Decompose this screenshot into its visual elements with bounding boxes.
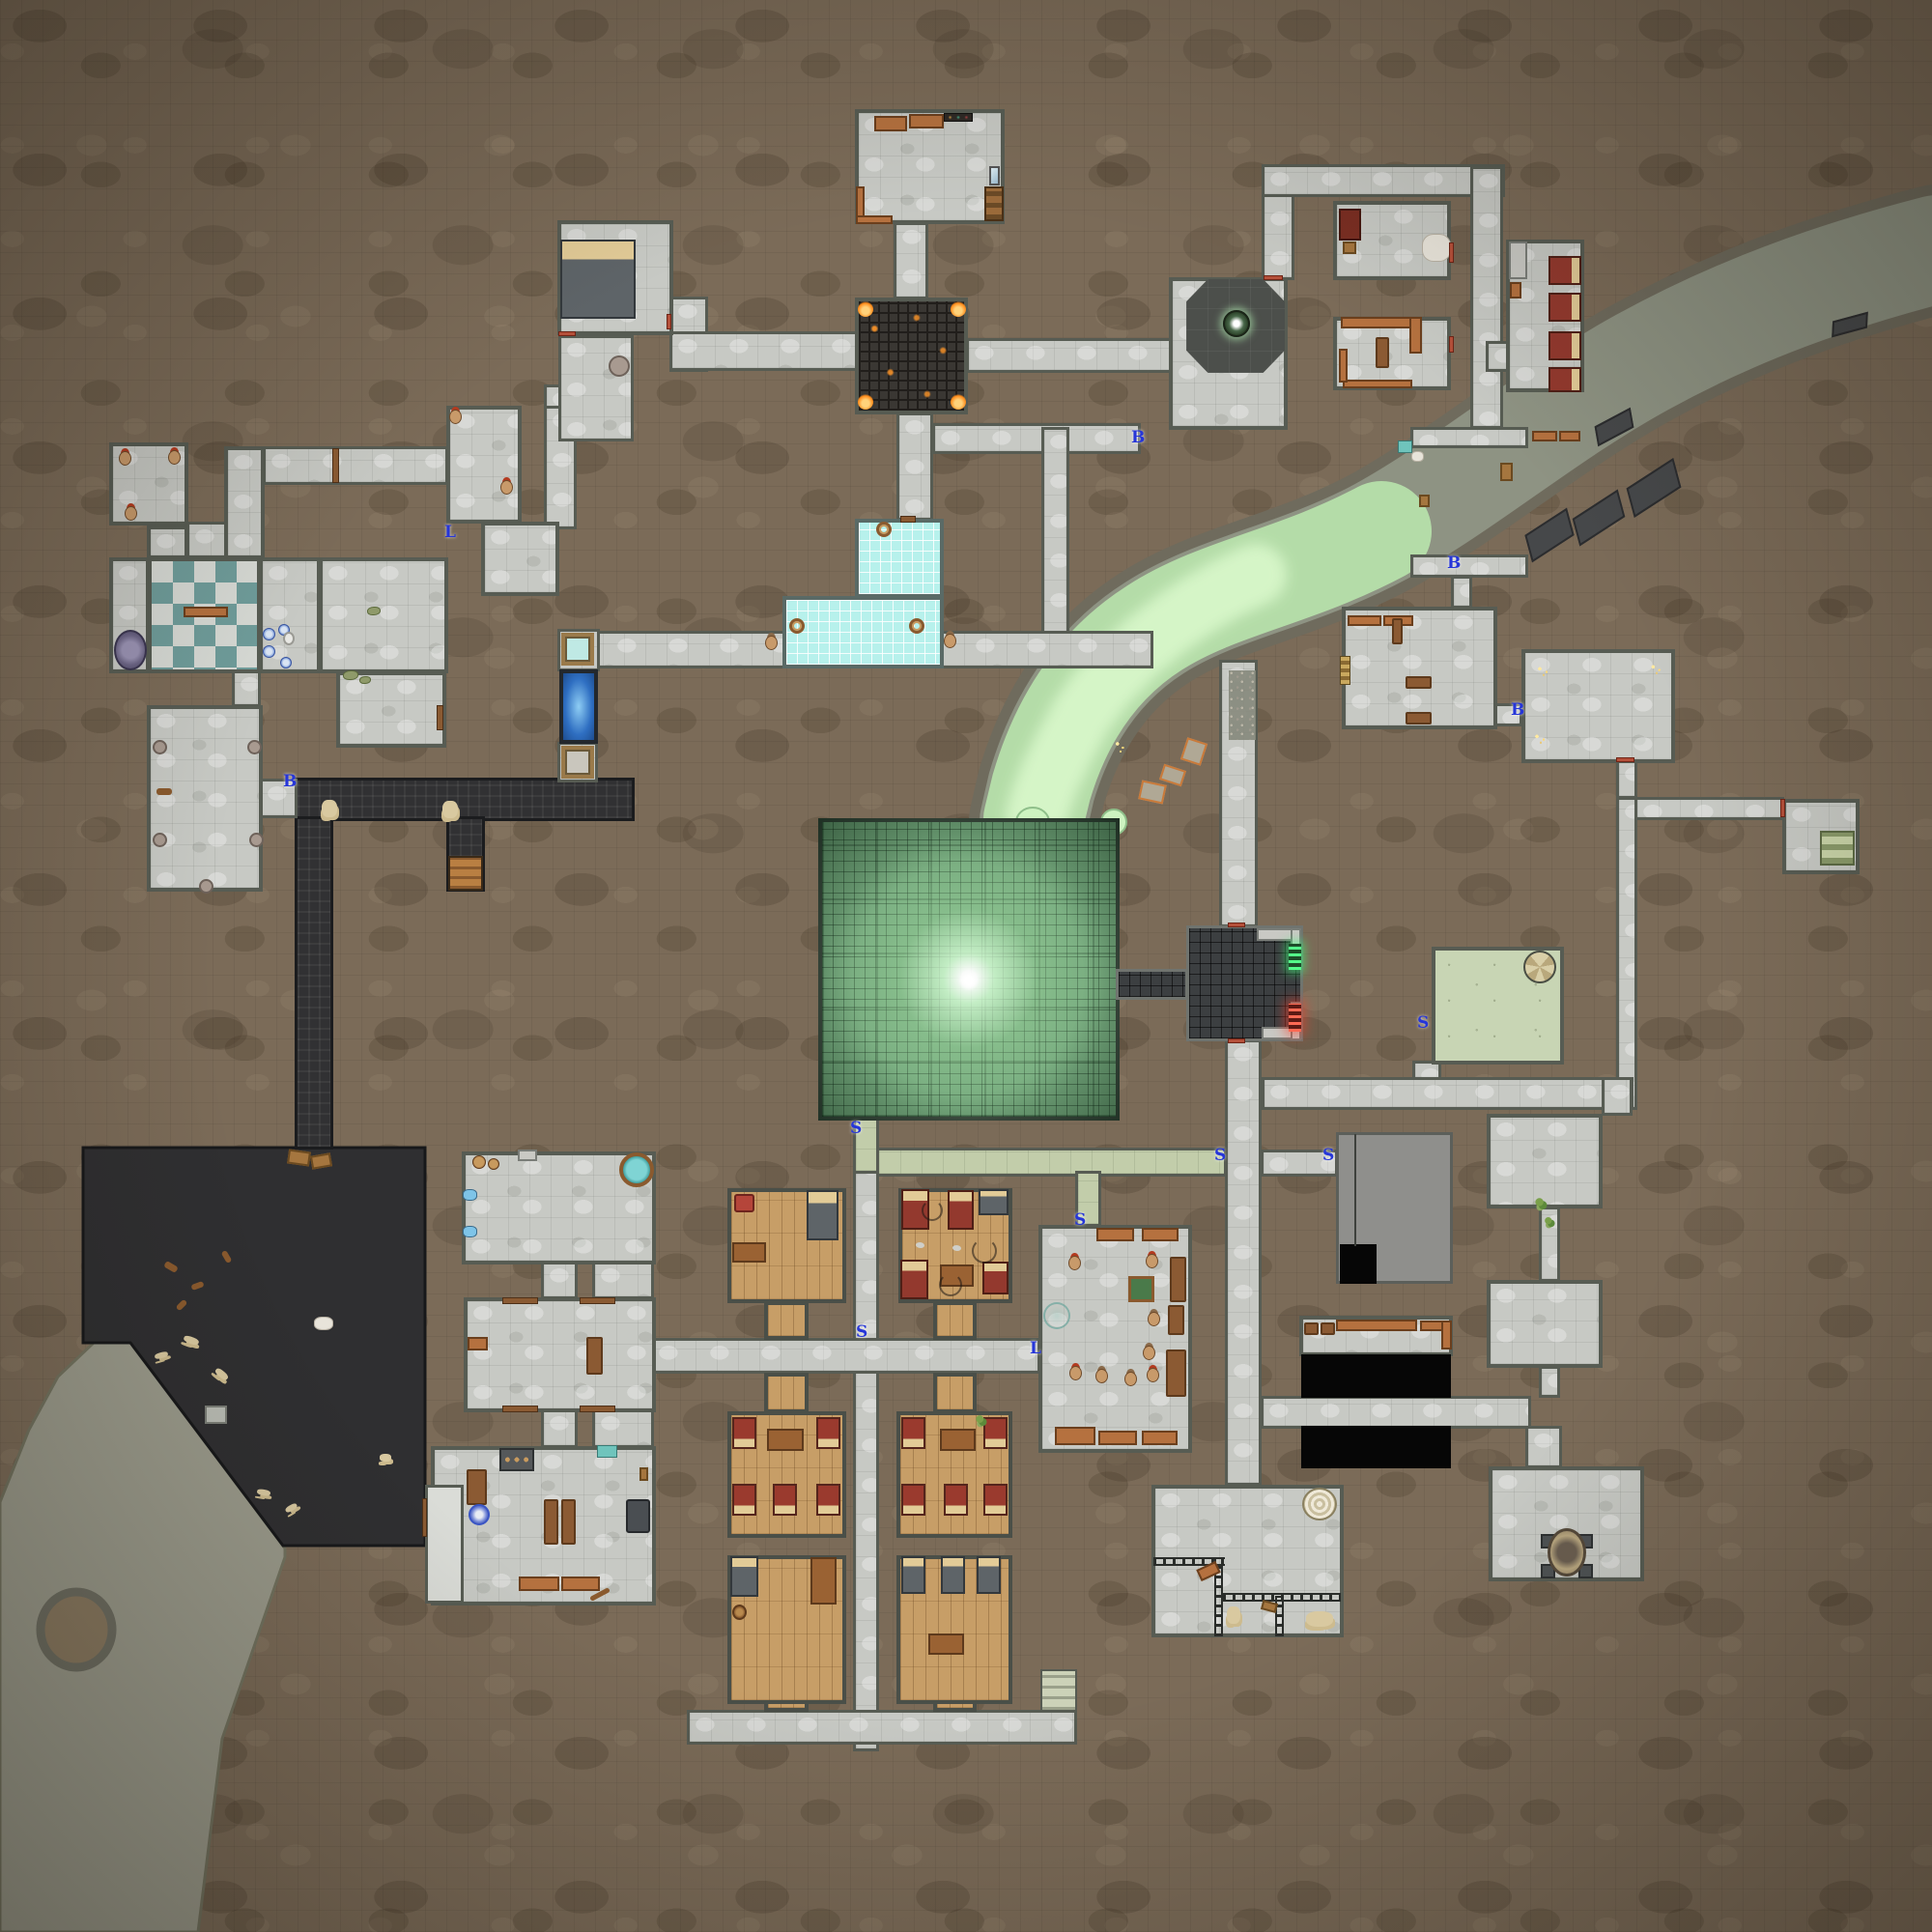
fire-octagon-corr[interactable] [966,338,1173,373]
bunk-bed[interactable] [1548,331,1581,360]
grand-bed[interactable] [560,240,636,319]
corr-h5[interactable] [1262,1077,1634,1110]
corr-v2-lower[interactable] [1225,1039,1262,1486]
door-lintel[interactable] [502,1297,538,1304]
stove[interactable] [499,1448,534,1471]
tavern-bench[interactable] [1055,1427,1095,1445]
ornate-round-table[interactable] [114,630,147,670]
bed[interactable] [948,1190,974,1230]
corridor-west-fire[interactable] [669,331,858,371]
shore-corr-north[interactable] [1410,427,1528,448]
goblin-room-1b[interactable] [147,526,188,559]
east-room-s[interactable] [336,671,446,748]
skeleton[interactable] [1227,1606,1240,1624]
table[interactable] [1376,337,1389,368]
shore-pond [41,1592,112,1667]
wash-basin[interactable] [463,1189,477,1201]
bedroll[interactable] [732,1417,756,1449]
w4-stub[interactable] [933,1373,977,1413]
checker-barracks-link[interactable] [232,669,261,707]
nw-corridor[interactable] [263,446,448,485]
teal-basin[interactable] [597,1445,617,1458]
green-bookshelf[interactable] [1820,831,1855,866]
roomB-s-stub[interactable] [1539,1366,1560,1398]
corr-h3[interactable] [1261,1396,1531,1429]
hot-tub[interactable] [619,1152,654,1187]
jail-bars[interactable] [1275,1596,1284,1636]
corr-to-river[interactable] [932,423,1141,454]
bed[interactable] [982,1262,1009,1294]
bath-stub-4[interactable] [592,1408,654,1448]
door[interactable] [1449,242,1454,263]
blue-pool[interactable] [559,669,598,744]
green-led-panel [1289,944,1301,970]
table[interactable] [767,1429,804,1451]
patron[interactable] [1095,1369,1108,1383]
bedroll[interactable] [901,1417,925,1449]
ne-corridor-v2[interactable] [1470,166,1503,429]
door[interactable] [437,705,443,730]
rope-coil[interactable] [1302,1488,1337,1520]
w3-stub[interactable] [764,1373,809,1413]
teal-mat[interactable] [1398,440,1412,453]
corr-v5[interactable] [1616,797,1637,1110]
door-marker-B[interactable]: B [1131,430,1145,446]
counter[interactable] [1339,349,1348,383]
door[interactable] [558,331,576,336]
counter[interactable] [1409,317,1422,354]
moss-rock[interactable] [343,670,358,680]
corr-v1-main[interactable] [853,1114,879,1751]
bathhouse-3-annex[interactable] [425,1485,464,1604]
corr-h4[interactable] [1634,797,1784,820]
bench-row[interactable] [561,1577,600,1591]
gold-cache[interactable] [1113,736,1128,755]
fire-pool-corr[interactable] [896,412,933,521]
square-tub[interactable] [561,746,594,779]
east-room[interactable] [319,557,448,673]
dark-bridge[interactable] [1116,969,1188,1000]
bedroll[interactable] [944,1484,968,1516]
shelf[interactable] [1510,282,1521,298]
door[interactable] [1264,275,1283,280]
dark-chest[interactable] [626,1499,650,1533]
cyan-pool-a[interactable] [855,519,944,598]
gold-sparkle[interactable] [1648,661,1665,676]
bath-stub-2[interactable] [592,1261,654,1299]
log[interactable] [156,788,172,795]
corner-flame[interactable] [951,301,966,317]
shrine-stub[interactable] [1525,1426,1562,1468]
gold-sparkle[interactable] [1534,663,1553,678]
door-marker-S[interactable]: S [1322,1148,1334,1164]
door-marker-B[interactable]: B [283,774,297,790]
valve-wheel[interactable] [909,618,924,634]
void-counter[interactable] [1441,1321,1452,1350]
door-marker-B[interactable]: B [1511,702,1524,719]
bench[interactable] [1348,615,1381,626]
red-desk[interactable] [1339,209,1361,241]
wall-table[interactable] [1166,1350,1186,1397]
vine-plant[interactable] [1534,1196,1548,1211]
kitchen-counter[interactable] [1509,241,1527,279]
weapon-rack[interactable] [944,113,973,122]
bed[interactable] [730,1556,758,1597]
crate[interactable] [287,1149,311,1166]
barrel[interactable] [732,1605,747,1620]
blue-table[interactable] [263,628,275,640]
workbench[interactable] [909,114,944,128]
mirror[interactable] [989,166,1000,185]
door[interactable] [1228,1038,1245,1043]
gray-box[interactable] [518,1150,537,1161]
door-marker-S[interactable]: S [850,1121,862,1137]
desk[interactable] [810,1557,837,1605]
table[interactable] [467,1469,487,1505]
door[interactable] [332,448,339,483]
bank-gravel [1229,670,1256,740]
bathhouse-2[interactable] [464,1297,656,1412]
bunk-bed[interactable] [1548,293,1581,322]
void-counter[interactable] [1336,1320,1417,1331]
desk[interactable] [732,1242,766,1263]
bedroll[interactable] [816,1484,840,1516]
stool[interactable] [1419,495,1430,507]
workbench[interactable] [874,116,907,131]
w1-stub[interactable] [764,1301,809,1340]
corner-flame[interactable] [951,394,966,410]
r1-south-stub[interactable] [1616,759,1637,799]
patron[interactable] [1069,1366,1082,1380]
bed[interactable] [941,1556,965,1594]
tavern-bench[interactable] [1142,1431,1178,1445]
patron[interactable] [1146,1254,1158,1268]
white-keg[interactable] [283,632,295,645]
patron[interactable] [1068,1256,1081,1270]
door-marker-S[interactable]: S [1417,1015,1429,1032]
door-marker-L[interactable]: L [1030,1341,1041,1357]
void-black-b[interactable] [1301,1426,1451,1468]
shore-corr-south[interactable] [1410,554,1528,578]
blue-table[interactable] [280,657,292,668]
stone-slab[interactable] [205,1406,227,1424]
table[interactable] [928,1634,964,1655]
round-boulder[interactable] [247,740,262,754]
checker-bench[interactable] [184,607,228,617]
toproom-s-corr[interactable] [894,222,928,299]
door-marker-S[interactable]: S [856,1324,867,1341]
patron[interactable] [1143,1346,1155,1360]
tavern-bench[interactable] [1096,1228,1134,1241]
table[interactable] [940,1429,976,1451]
stone-well[interactable] [1548,1528,1586,1577]
door-lintel[interactable] [502,1406,538,1412]
door-marker-B[interactable]: B [1447,555,1461,572]
blue-table[interactable] [263,645,275,658]
bunk-bed[interactable] [1548,367,1581,392]
stool[interactable] [639,1467,648,1481]
w2-stub[interactable] [933,1301,977,1340]
bed[interactable] [979,1189,1009,1215]
ladder-rack[interactable] [1340,656,1350,685]
clay-pot[interactable] [488,1158,499,1170]
ramp-pit[interactable] [1340,1244,1377,1284]
goblin-room-2s[interactable] [481,522,559,596]
exit-stairs-pale[interactable] [1040,1669,1077,1712]
dark-corridor-h[interactable] [295,778,635,821]
door[interactable] [1228,923,1245,927]
bath-stub-3[interactable] [541,1408,578,1448]
bed[interactable] [901,1556,925,1594]
patron[interactable] [1124,1372,1137,1386]
table[interactable] [1406,676,1432,689]
bench-row[interactable] [519,1577,559,1591]
door-marker-L[interactable]: L [444,525,456,541]
room-b[interactable] [1487,1280,1603,1368]
green-orb[interactable] [1223,310,1250,337]
valve-wheel[interactable] [789,618,805,634]
corr-h1-lit[interactable] [855,1148,1227,1177]
wall-table[interactable] [1168,1305,1184,1335]
counter[interactable] [1341,317,1412,328]
ramp-line [1354,1134,1356,1246]
wood-stairs-down[interactable] [448,856,483,891]
goblin[interactable] [449,410,462,424]
round-boulder[interactable] [153,740,167,754]
bedroll[interactable] [732,1484,756,1516]
river-room-link[interactable] [1451,576,1472,609]
scratches[interactable] [1306,1611,1333,1627]
dungeon-map[interactable]: SSSSSSBBBBLL [0,0,1932,1932]
goblin[interactable] [765,636,778,650]
void-table[interactable] [1304,1322,1319,1335]
valve-wheel[interactable] [876,522,892,537]
door-lintel[interactable] [580,1406,615,1412]
red-led-panel [1289,1004,1301,1032]
bunk-bed[interactable] [1548,256,1581,285]
long-table[interactable] [561,1499,576,1545]
door[interactable] [667,314,671,329]
table[interactable] [1406,712,1432,724]
moss-rock[interactable] [367,607,381,615]
vine-plant[interactable] [1544,1215,1555,1229]
potted-plant[interactable] [975,1413,987,1428]
bedroom-s-corr[interactable] [558,335,634,441]
goblin[interactable] [944,634,956,648]
ne-corridor-h[interactable] [1262,164,1505,197]
roomA-n-stub[interactable] [1602,1077,1633,1116]
blue-compass-rug[interactable] [469,1504,490,1525]
door[interactable] [1449,336,1454,353]
tavern-bench[interactable] [1098,1431,1137,1445]
wash-basin[interactable] [463,1226,477,1237]
bottom-corr[interactable] [687,1710,1077,1745]
goblin[interactable] [119,451,131,466]
void-black-a[interactable] [1301,1354,1451,1398]
door-marker-S[interactable]: S [1214,1148,1226,1164]
skeleton[interactable] [442,801,458,818]
bedroll[interactable] [901,1484,925,1516]
tavern-bench[interactable] [1142,1228,1179,1241]
round-boulder[interactable] [609,355,630,377]
bedroll[interactable] [983,1484,1008,1516]
skull[interactable] [380,1454,391,1462]
nw-column-room[interactable] [224,446,265,559]
goblin[interactable] [168,450,181,465]
corner-flame[interactable] [858,301,873,317]
rag[interactable] [314,1317,333,1330]
spiral-staircase[interactable] [1523,951,1556,983]
goblin[interactable] [125,506,137,521]
teal-glyph[interactable] [1043,1302,1070,1329]
room-a[interactable] [1487,1114,1603,1208]
red-armchair[interactable] [734,1194,754,1212]
spirit-swirl[interactable] [939,1273,962,1296]
wall-table[interactable] [1170,1257,1186,1302]
bed[interactable] [977,1556,1001,1594]
moss-rock[interactable] [359,676,371,684]
corner-flame[interactable] [858,394,873,410]
square-fountain[interactable] [561,633,594,666]
crate[interactable] [1343,241,1356,254]
pool-hatch[interactable] [900,516,916,523]
spirit-swirl[interactable] [922,1200,943,1221]
corner-counter[interactable] [856,215,893,224]
patron[interactable] [1147,1368,1159,1382]
bookshelf[interactable] [984,186,1004,221]
bath-stub-1[interactable] [541,1261,578,1299]
round-boulder[interactable] [199,879,213,894]
round-boulder[interactable] [249,833,264,847]
dark-corridor-v[interactable] [295,816,333,1150]
bedroll[interactable] [816,1417,840,1449]
door-lintel[interactable] [580,1297,615,1304]
door-marker-S[interactable]: S [1074,1212,1086,1229]
bench[interactable] [468,1337,488,1350]
table[interactable] [1392,618,1403,644]
spirit-swirl[interactable] [972,1238,997,1264]
door[interactable] [1616,757,1634,762]
long-table[interactable] [544,1499,558,1545]
goblin[interactable] [500,480,513,495]
void-table[interactable] [1321,1322,1335,1335]
door[interactable] [422,1498,427,1537]
bed[interactable] [807,1190,838,1240]
clay-pot[interactable] [472,1155,486,1169]
bank-bench[interactable] [1532,431,1557,441]
door[interactable] [1780,799,1785,817]
rat[interactable] [916,1242,924,1248]
canoe[interactable] [1411,451,1424,462]
counter[interactable] [1343,380,1412,388]
machine-room[interactable] [1186,925,1303,1041]
barracks[interactable] [147,705,263,892]
corr-h2[interactable] [650,1338,1040,1374]
jug[interactable] [1500,463,1513,481]
fur-rug[interactable] [1422,234,1451,262]
map-table[interactable] [1128,1276,1154,1302]
bed[interactable] [900,1260,928,1299]
glowing-figure[interactable] [959,970,979,991]
gold-sparkle[interactable] [1531,730,1550,746]
bedroll[interactable] [773,1484,797,1516]
patron[interactable] [1148,1312,1160,1326]
skeleton[interactable] [322,800,337,817]
rat[interactable] [952,1245,961,1251]
round-boulder[interactable] [153,833,167,847]
bank-bench[interactable] [1559,431,1580,441]
table[interactable] [586,1337,603,1375]
